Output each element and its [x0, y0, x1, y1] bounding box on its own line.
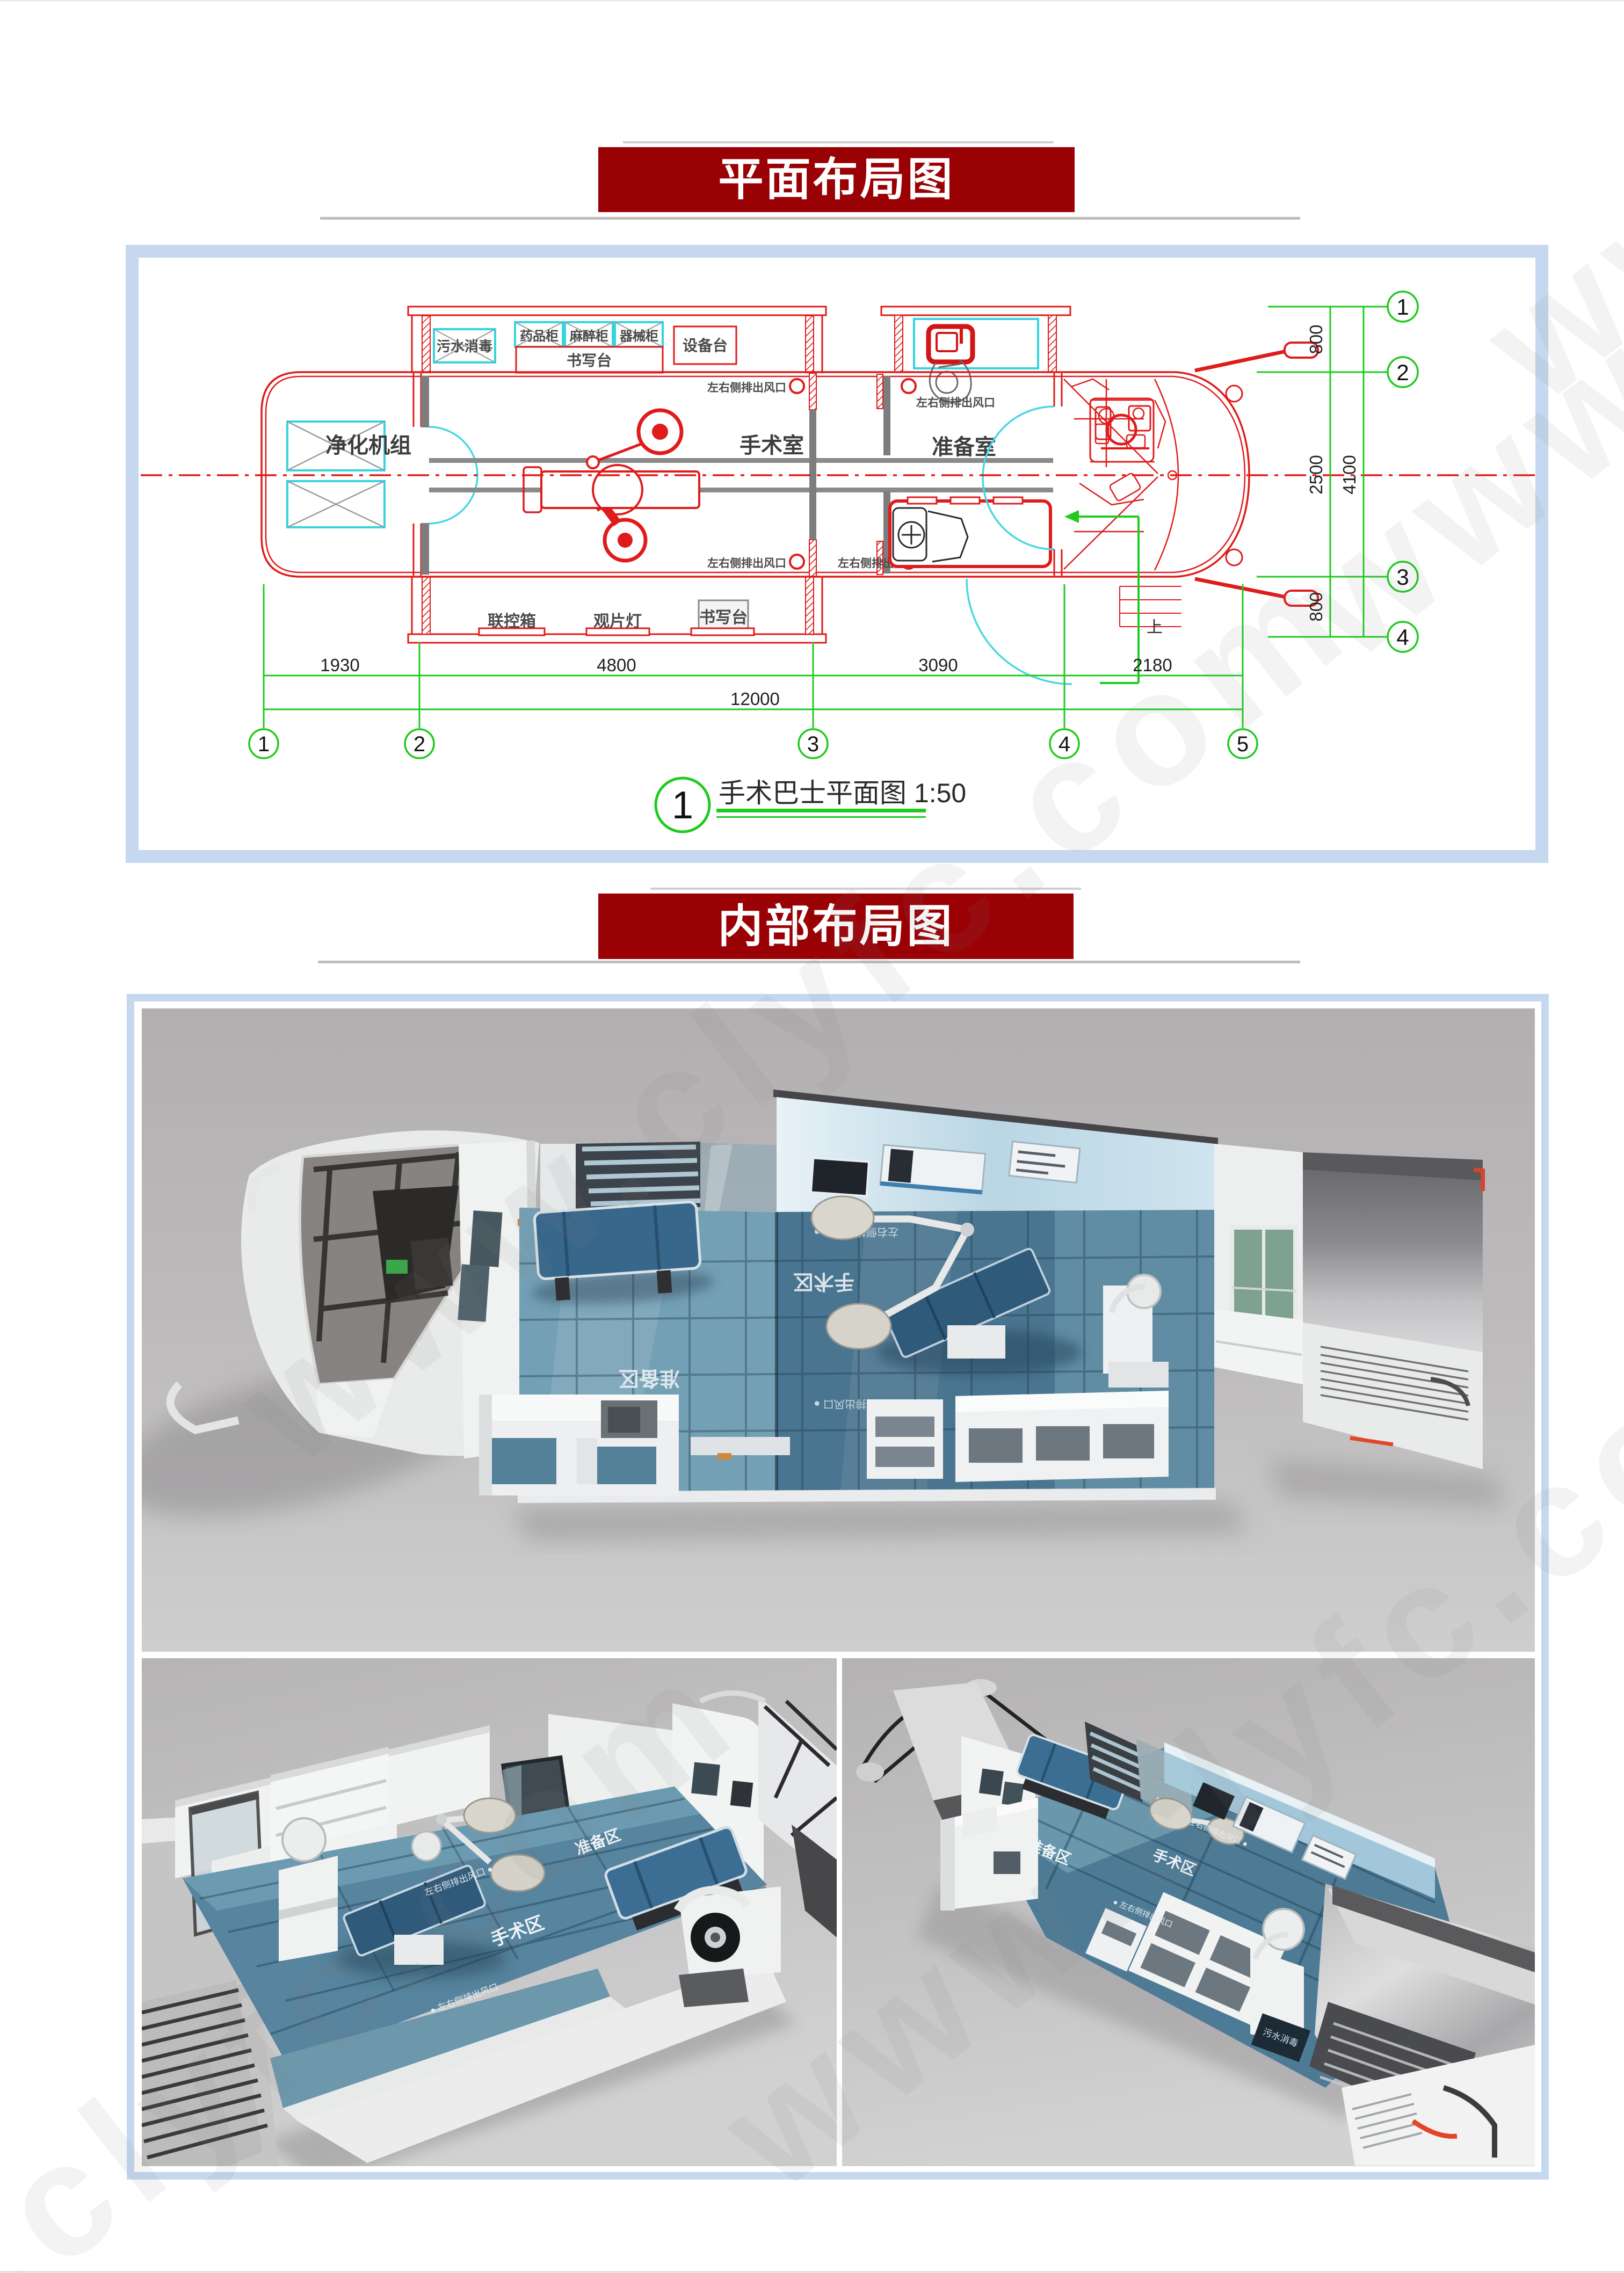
svg-text:2: 2: [1396, 360, 1409, 385]
svg-text:3090: 3090: [918, 655, 958, 675]
svg-text:2500: 2500: [1306, 455, 1326, 494]
svg-text:书写台: 书写台: [567, 352, 612, 369]
svg-text:左右侧排出风口: 左右侧排出风口: [916, 396, 995, 409]
svg-text:手术巴士平面图 1:50: 手术巴士平面图 1:50: [719, 778, 966, 808]
svg-text:2: 2: [414, 732, 425, 756]
svg-text:2180: 2180: [1133, 655, 1172, 675]
svg-text:1930: 1930: [320, 655, 359, 675]
svg-text:书写台: 书写台: [699, 608, 748, 627]
svg-text:800: 800: [1306, 592, 1326, 621]
svg-text:1: 1: [258, 732, 270, 756]
svg-text:手术室: 手术室: [740, 434, 804, 457]
svg-text:左右侧排出风口: 左右侧排出风口: [707, 381, 786, 394]
svg-text:器械柜: 器械柜: [619, 329, 658, 344]
svg-text:4: 4: [1058, 732, 1070, 756]
svg-text:5: 5: [1237, 732, 1249, 756]
svg-text:左右侧排出风口: 左右侧排出风口: [707, 557, 786, 570]
svg-text:上: 上: [1147, 619, 1163, 636]
svg-text:4: 4: [1396, 624, 1409, 650]
svg-text:1: 1: [672, 784, 693, 827]
svg-text:4800: 4800: [597, 655, 636, 675]
svg-text:准备区: 准备区: [619, 1367, 680, 1389]
svg-text:设备台: 设备台: [683, 337, 728, 354]
svg-text:800: 800: [1306, 324, 1326, 354]
svg-text:麻醉柜: 麻醉柜: [569, 329, 608, 344]
svg-text:手术区: 手术区: [793, 1270, 854, 1292]
svg-text:药品柜: 药品柜: [520, 329, 559, 344]
svg-text:净化机组: 净化机组: [325, 434, 411, 457]
svg-text:1: 1: [1396, 294, 1409, 319]
svg-text:12000: 12000: [730, 689, 780, 709]
svg-text:4100: 4100: [1339, 455, 1359, 494]
svg-text:3: 3: [1396, 564, 1409, 590]
svg-text:3: 3: [807, 732, 819, 756]
svg-text:污水消毒: 污水消毒: [437, 338, 492, 354]
